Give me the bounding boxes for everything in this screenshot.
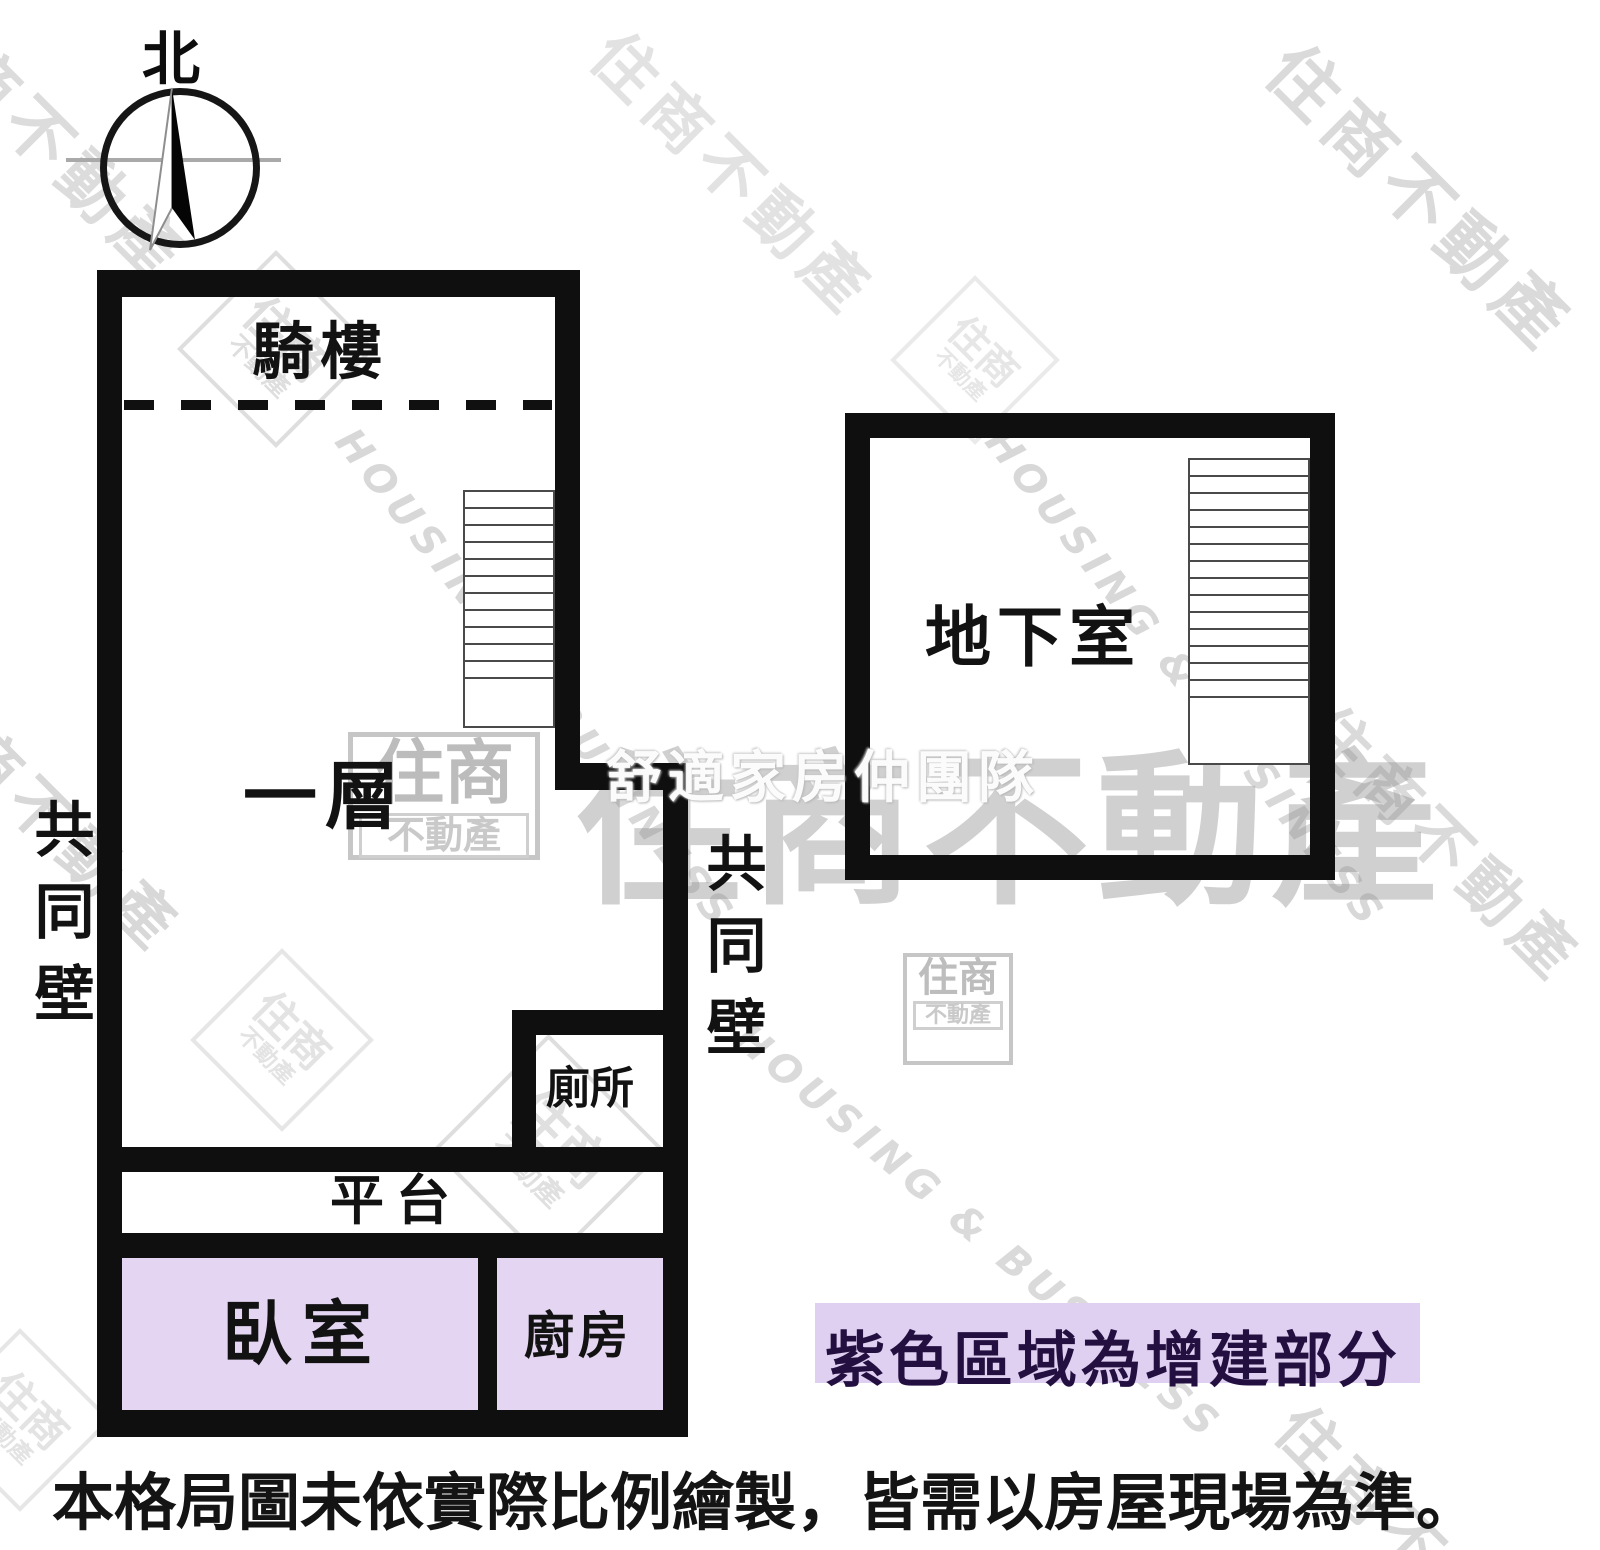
wall-first-floor-left [97, 270, 122, 1437]
brand-logo-box-basement: 住商 不動產 [903, 953, 1013, 1065]
wall-toilet-left [512, 1010, 536, 1147]
brand-logo-bottom-text: 不動產 [913, 1001, 1003, 1030]
wall-basement-top [845, 413, 1335, 438]
room-label-platform: 平台 [330, 1170, 462, 1232]
brand-logo-diamond-left: 住商 不動產 [190, 948, 374, 1132]
compass-needle-icon [120, 80, 230, 260]
shared-wall-label-left: 共同壁 [24, 798, 93, 1044]
wall-first-floor-bottom [97, 1410, 688, 1437]
wall-basement-right [1310, 413, 1335, 880]
room-label-bedroom: 臥室 [222, 1294, 382, 1375]
shared-wall-label-right: 共同壁 [696, 832, 765, 1078]
wall-platform-bottom [97, 1233, 688, 1258]
wall-first-floor-lower-right [663, 763, 688, 1437]
watermark-brand-diagonal-top-center: 住商不動產 [573, 8, 900, 335]
wall-basement-bottom [845, 855, 1335, 880]
watermark-brand-diagonal-top-right: 住商不動產 [1247, 18, 1600, 372]
branch-overlay-watermark: 舒適家房仲團隊 [606, 733, 1040, 814]
stair-treads [465, 492, 553, 682]
brand-logo-top-text: 住商 [907, 957, 1009, 999]
wall-bedroom-kitchen-divider [478, 1258, 497, 1410]
purple-note-text: 紫色區域為增建部分 [825, 1312, 1401, 1399]
stair-treads [1190, 460, 1308, 705]
room-label-basement: 地下室 [925, 600, 1141, 676]
wall-first-floor-top [97, 270, 580, 297]
room-label-first-floor: 一層 [243, 755, 407, 840]
room-label-arcade: 騎樓 [252, 316, 388, 387]
stairs-basement [1188, 458, 1310, 765]
disclaimer-text: 本格局圖未依實際比例繪製，皆需以房屋現場為準。 [52, 1452, 1478, 1542]
arcade-dashed-line [124, 400, 552, 410]
floor-plan-canvas: 住商不動產 住商不動產 住商不動產 住商不動產 住商不動產 住商不動產 HOUS… [0, 0, 1600, 1550]
room-label-kitchen: 廚房 [524, 1308, 632, 1366]
wall-first-floor-upper-right [555, 270, 580, 790]
stairs-first-floor [463, 490, 555, 728]
room-label-toilet: 廁所 [546, 1064, 634, 1115]
